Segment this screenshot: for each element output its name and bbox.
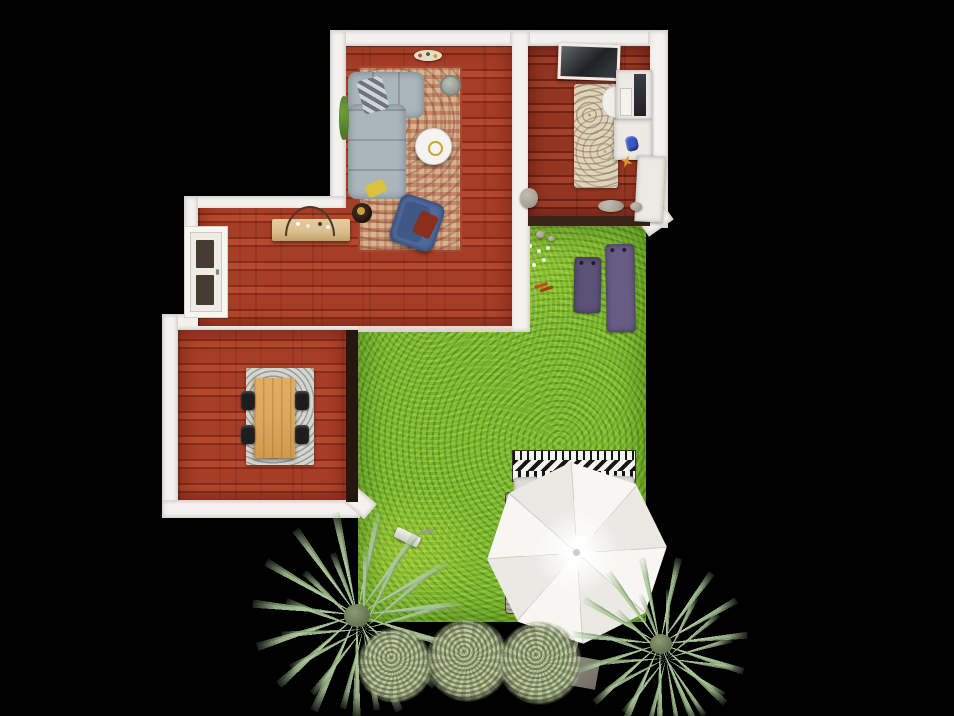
dining-chair[interactable] [295, 425, 309, 444]
dining-chair[interactable] [241, 425, 255, 444]
decor-stone[interactable] [598, 200, 624, 212]
palm-trunk-top [650, 634, 672, 654]
round-side-table[interactable] [352, 203, 372, 223]
dining-chair[interactable] [241, 391, 255, 410]
monitor[interactable] [634, 74, 646, 116]
wall-hall-top [184, 196, 346, 210]
dining-chair[interactable] [295, 391, 309, 410]
ceiling-lamp[interactable] [414, 50, 442, 61]
lawn-stone[interactable] [548, 236, 555, 241]
render-canvas[interactable] [0, 0, 954, 716]
door-handle[interactable] [216, 269, 219, 275]
wall-divider [510, 30, 530, 332]
wall-top [330, 30, 668, 46]
keyboard[interactable] [620, 88, 632, 116]
bush-right[interactable] [498, 621, 582, 705]
daybed-pattern-row [513, 451, 635, 460]
front-door[interactable] [190, 232, 222, 312]
palm-tree-right[interactable] [572, 556, 748, 716]
decor-stone[interactable] [630, 202, 642, 211]
yoga-mat-large[interactable] [605, 244, 636, 332]
dining-table[interactable] [254, 378, 295, 458]
potted-plant[interactable] [339, 96, 349, 140]
glass-wall-dining [346, 330, 358, 502]
door-glass-panel [196, 275, 214, 305]
bush-left[interactable] [357, 627, 433, 703]
palm-trunk-top [344, 604, 370, 627]
wall-dining-left [162, 314, 178, 518]
lawn-stone[interactable] [536, 231, 545, 238]
door-glass-panel [196, 240, 214, 268]
round-coffee-table[interactable] [415, 128, 452, 165]
yoga-mat-small[interactable] [574, 257, 602, 313]
decor-stone[interactable] [520, 188, 538, 208]
dark-headboard-panel[interactable] [557, 43, 620, 81]
white-cabinet[interactable] [634, 155, 665, 222]
console-decor-items[interactable] [296, 222, 300, 226]
gray-planter[interactable] [440, 75, 461, 96]
palm-tree-left[interactable] [252, 510, 462, 716]
